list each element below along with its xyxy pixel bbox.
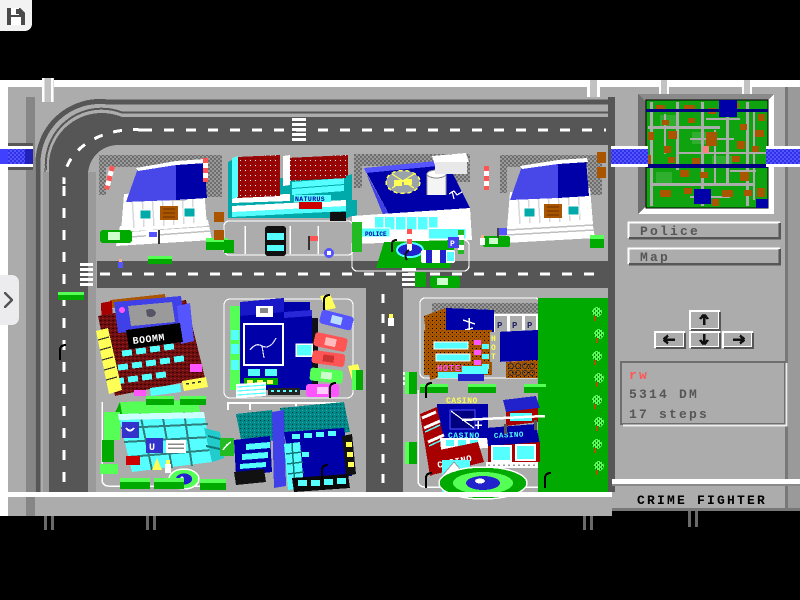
svg-text:P: P [497,321,503,331]
svg-text:P: P [450,240,455,249]
svg-text:H: H [491,335,496,344]
svg-text:O: O [491,344,496,353]
svg-text:NATURUS: NATURUS [295,196,325,203]
svg-text:P: P [512,321,518,331]
svg-text:Police: Police [640,224,700,239]
svg-text:Map: Map [640,250,670,265]
svg-text:CRIME FIGHTER: CRIME FIGHTER [637,493,767,508]
svg-text:U: U [149,443,155,454]
svg-text:CASINO: CASINO [494,431,524,441]
svg-text:T: T [491,353,496,362]
svg-text:POLICE: POLICE [365,231,387,238]
svg-text:rw: rw [629,368,649,383]
svg-text:17 steps: 17 steps [629,407,709,422]
svg-text:5314 DM: 5314 DM [629,387,699,402]
svg-text:P: P [527,321,533,331]
